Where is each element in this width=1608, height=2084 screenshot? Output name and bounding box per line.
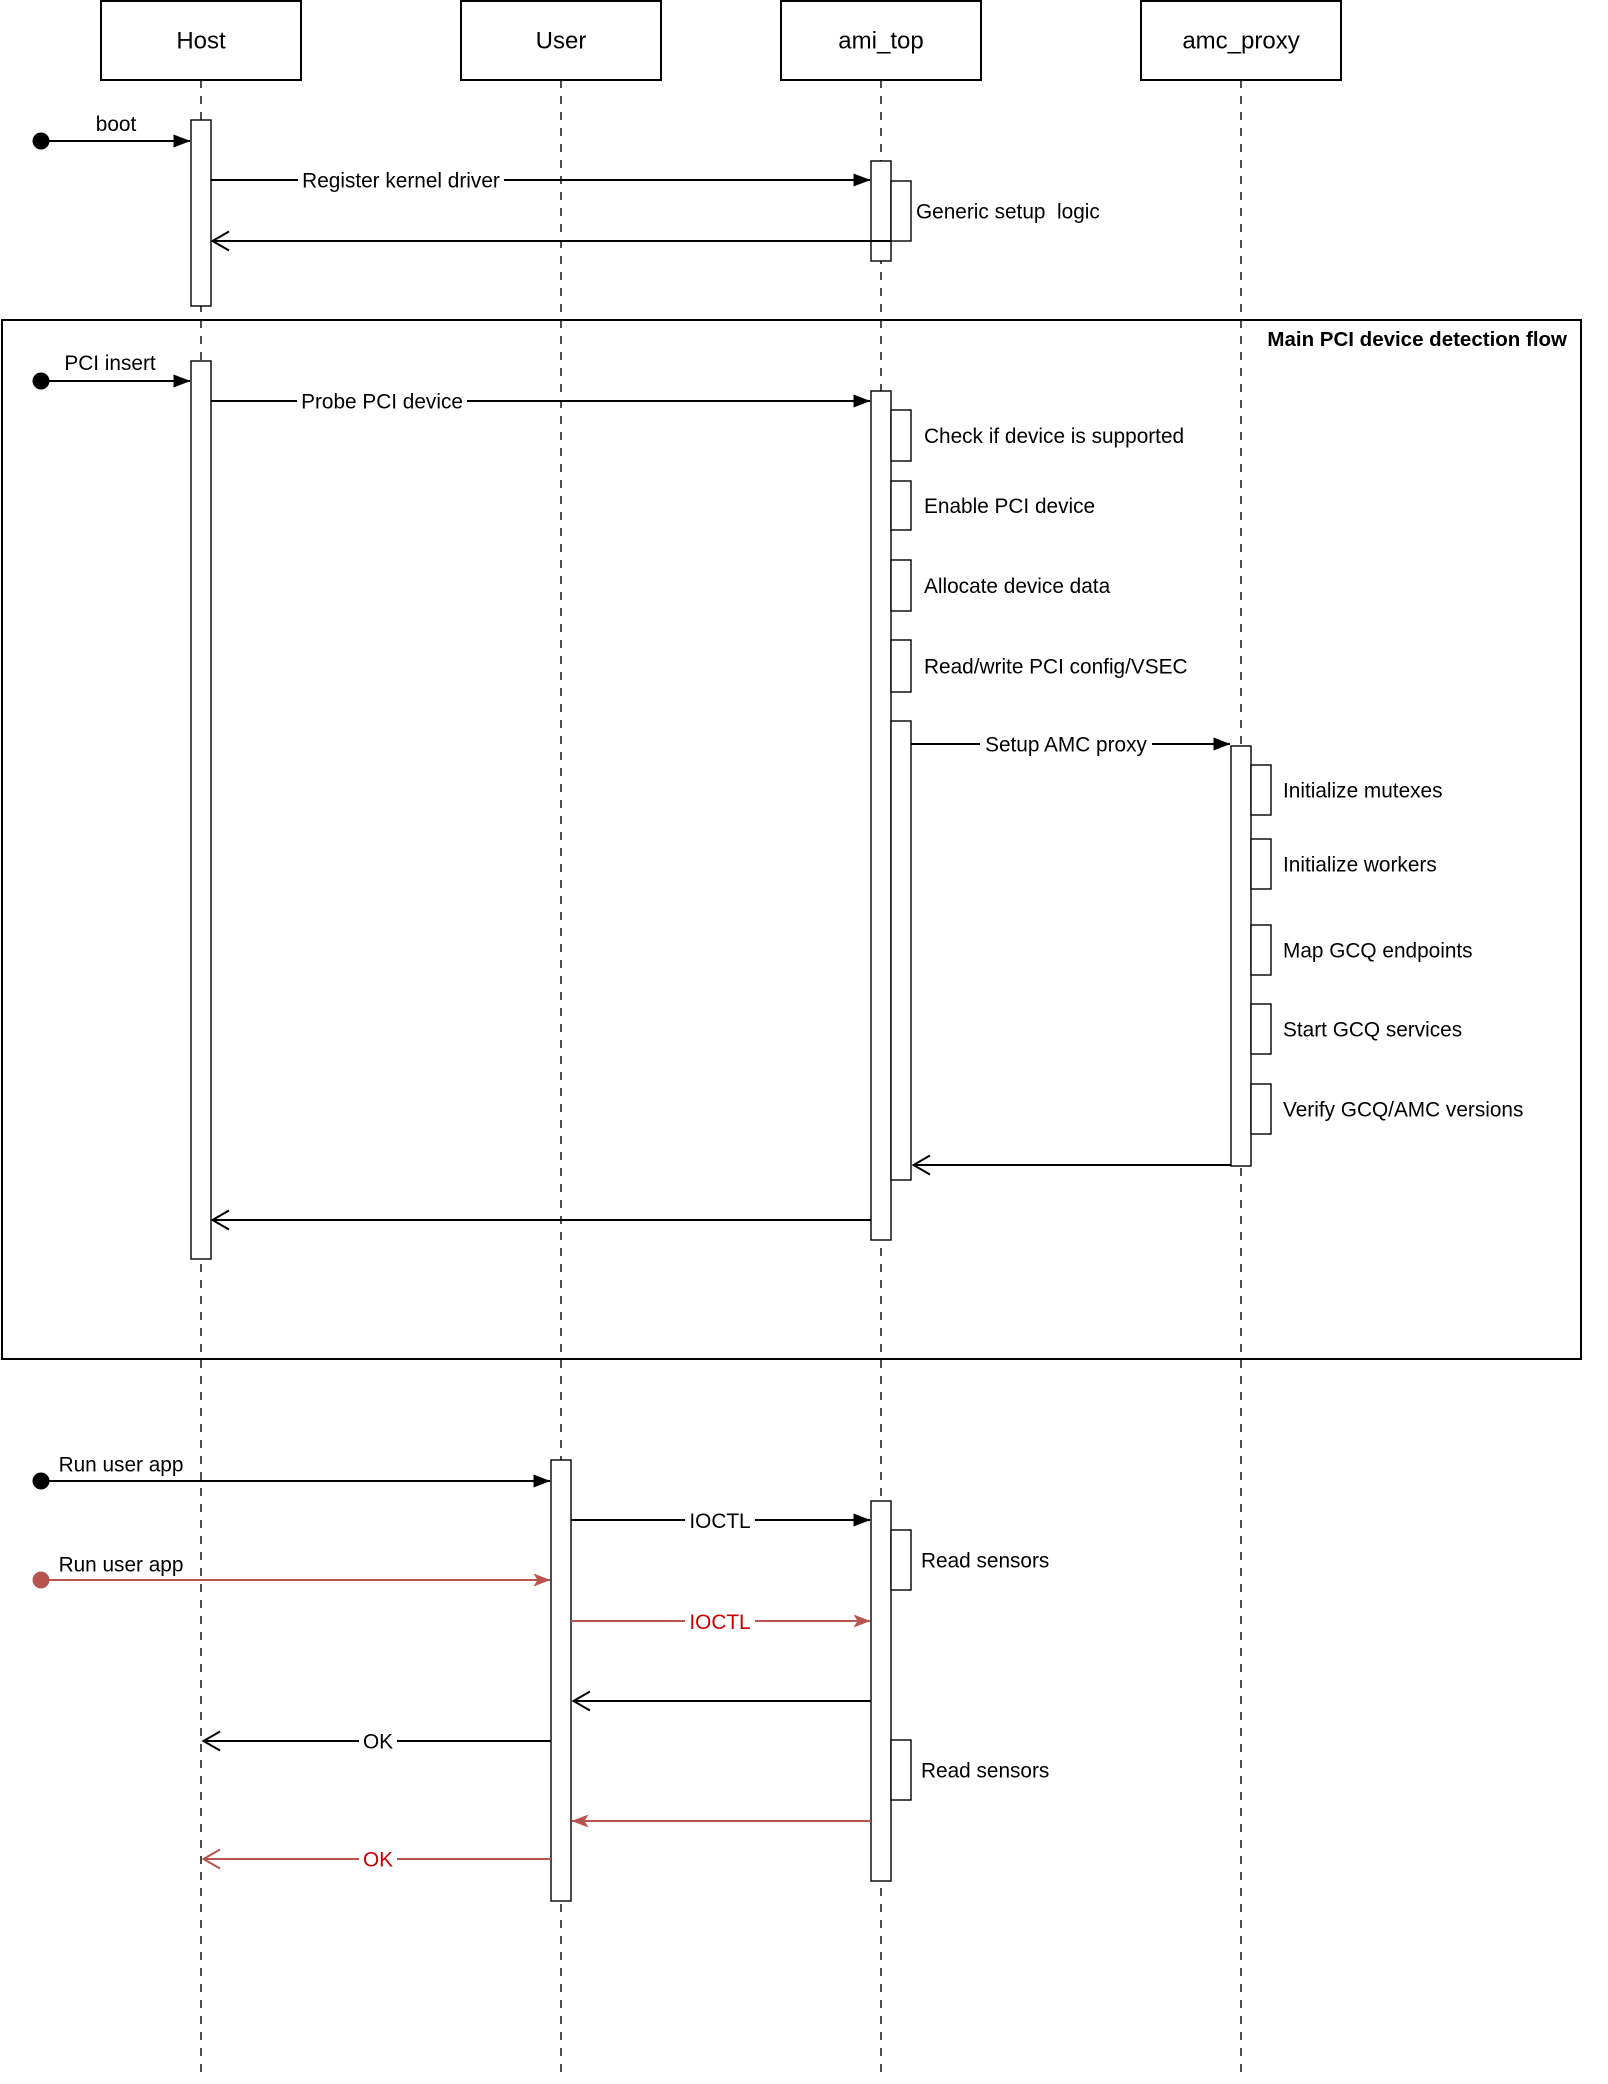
svg-text:IOCTL: IOCTL bbox=[689, 1611, 750, 1634]
svg-text:Host: Host bbox=[176, 28, 226, 55]
svg-text:Read sensors: Read sensors bbox=[921, 1550, 1049, 1573]
svg-text:OK: OK bbox=[363, 1731, 393, 1754]
svg-text:Initialize mutexes: Initialize mutexes bbox=[1283, 780, 1443, 803]
svg-text:Main PCI device detection flow: Main PCI device detection flow bbox=[1267, 328, 1567, 351]
svg-text:IOCTL: IOCTL bbox=[689, 1510, 750, 1533]
svg-text:Run user app: Run user app bbox=[59, 1454, 184, 1477]
svg-text:Register kernel driver: Register kernel driver bbox=[302, 170, 500, 193]
svg-text:Allocate device data: Allocate device data bbox=[924, 575, 1111, 598]
svg-text:boot: boot bbox=[96, 113, 137, 136]
svg-text:Initialize workers: Initialize workers bbox=[1283, 854, 1437, 877]
svg-text:User: User bbox=[536, 28, 587, 55]
svg-text:amc_proxy: amc_proxy bbox=[1182, 28, 1299, 55]
svg-text:PCI insert: PCI insert bbox=[64, 352, 156, 375]
svg-text:OK: OK bbox=[363, 1849, 393, 1872]
svg-text:Start GCQ services: Start GCQ services bbox=[1283, 1019, 1462, 1042]
svg-text:Read sensors: Read sensors bbox=[921, 1760, 1049, 1783]
svg-text:Setup AMC proxy: Setup AMC proxy bbox=[985, 734, 1147, 757]
svg-text:Verify GCQ/AMC versions: Verify GCQ/AMC versions bbox=[1283, 1099, 1523, 1122]
svg-text:Read/write PCI config/VSEC: Read/write PCI config/VSEC bbox=[924, 656, 1188, 679]
svg-text:Generic setup logic: Generic setup logic bbox=[916, 201, 1100, 224]
svg-text:Map GCQ endpoints: Map GCQ endpoints bbox=[1283, 940, 1473, 963]
svg-text:Run user app: Run user app bbox=[59, 1554, 184, 1577]
svg-text:Probe PCI device: Probe PCI device bbox=[301, 391, 463, 414]
svg-text:Check if device is supported: Check if device is supported bbox=[924, 425, 1184, 448]
svg-text:ami_top: ami_top bbox=[838, 28, 923, 55]
svg-text:Enable PCI device: Enable PCI device bbox=[924, 495, 1095, 518]
